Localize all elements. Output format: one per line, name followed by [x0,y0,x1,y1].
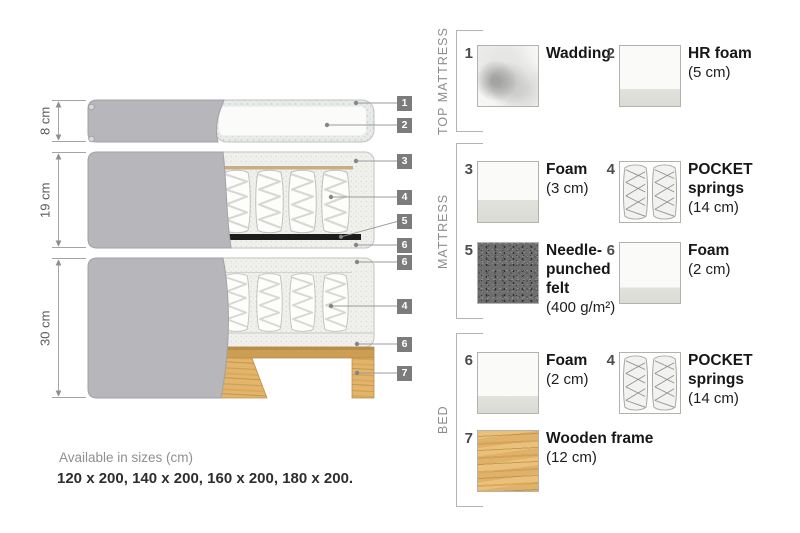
foam-swatch [477,161,539,223]
item-number: 7 [458,431,473,448]
legend-item-foam-3cm: 3 Foam (3 cm) [458,161,589,223]
foam-swatch [619,242,681,304]
wadding-swatch [477,45,539,107]
section-title-bed: BED [433,333,453,507]
item-name: Foam [546,352,589,371]
item-size: (12 cm) [546,449,653,468]
item-number: 2 [600,46,615,63]
dimension-label-top-mattress: 8 cm [36,100,54,142]
legend-item-pocket-springs: 4 POCKET springs (14 cm) [600,161,764,223]
section-title-mattress: MATTRESS [433,143,453,319]
legend-group-bed: 6 Foam (2 cm) 4 [456,333,786,507]
item-number: 4 [600,353,615,370]
wood-swatch [477,430,539,492]
item-number: 4 [600,162,615,179]
item-number: 3 [458,162,473,179]
foam-swatch [477,352,539,414]
legend-item-foam-2cm: 6 Foam (2 cm) [600,242,731,304]
dimension-label-bed: 30 cm [36,258,54,398]
legend-item-foam-2cm-bed: 6 Foam (2 cm) [458,352,589,414]
legend-item-needle-punched-felt: 5 Needle-punched felt (400 g/m²) [458,242,622,317]
dimension-lines [52,101,86,398]
felt-swatch [477,242,539,304]
item-size: (3 cm) [546,180,589,199]
item-name: Wooden frame [546,430,653,449]
item-number: 6 [600,243,615,260]
dimension-label-mattress: 19 cm [36,152,54,248]
callout-badge-6b: 6 [397,255,412,270]
bed-section [88,258,374,398]
legend-item-pocket-springs-bed: 4 POCKET springs (14 cm) [600,352,764,414]
callout-badge-6c: 6 [397,337,412,352]
pocket-springs-swatch [619,161,681,223]
item-size: (2 cm) [688,261,731,280]
legend-item-wadding: 1 Wadding [458,45,611,107]
pocket-springs-swatch [619,352,681,414]
callout-badge-3: 3 [397,154,412,169]
pocket-springs-graphic [621,354,679,412]
legend-group-mattress: 3 Foam (3 cm) 4 [456,143,786,319]
item-name: POCKET springs [688,352,764,390]
available-sizes-title: Available in sizes (cm) [59,450,353,465]
callout-badge-4b: 4 [397,299,412,314]
callout-badge-1: 1 [397,96,412,111]
foam-swatch [619,45,681,107]
legend-item-hr-foam: 2 HR foam (5 cm) [600,45,752,107]
top-mattress-section [88,100,374,142]
item-name: Foam [546,161,589,180]
legend-item-wooden-frame: 7 Wooden frame (12 cm) [458,430,653,492]
pocket-springs-graphic [621,163,679,221]
item-name: HR foam [688,45,752,64]
callout-badge-2: 2 [397,118,412,133]
callout-badge-5: 5 [397,214,412,229]
callout-badge-6: 6 [397,238,412,253]
mattress-section [88,152,374,248]
callout-badge-4: 4 [397,190,412,205]
section-title-top-mattress: TOP MATTRESS [433,30,453,132]
item-number: 6 [458,353,473,370]
item-name: Foam [688,242,731,261]
bed-construction-infographic: 8 cm 19 cm 30 cm 1 2 3 4 5 6 6 4 6 7 TOP… [0,0,800,533]
item-size: (14 cm) [688,390,764,409]
item-size: (14 cm) [688,199,764,218]
item-size: (2 cm) [546,371,589,390]
legend-group-top-mattress: 1 Wadding 2 HR foam (5 cm) [456,30,786,132]
available-sizes: Available in sizes (cm) 120 x 200, 140 x… [57,450,353,487]
item-name: POCKET springs [688,161,764,199]
item-number: 5 [458,243,473,260]
item-size: (5 cm) [688,64,752,83]
item-number: 1 [458,46,473,63]
callout-badge-7: 7 [397,366,412,381]
available-sizes-list: 120 x 200, 140 x 200, 160 x 200, 180 x 2… [57,470,353,487]
